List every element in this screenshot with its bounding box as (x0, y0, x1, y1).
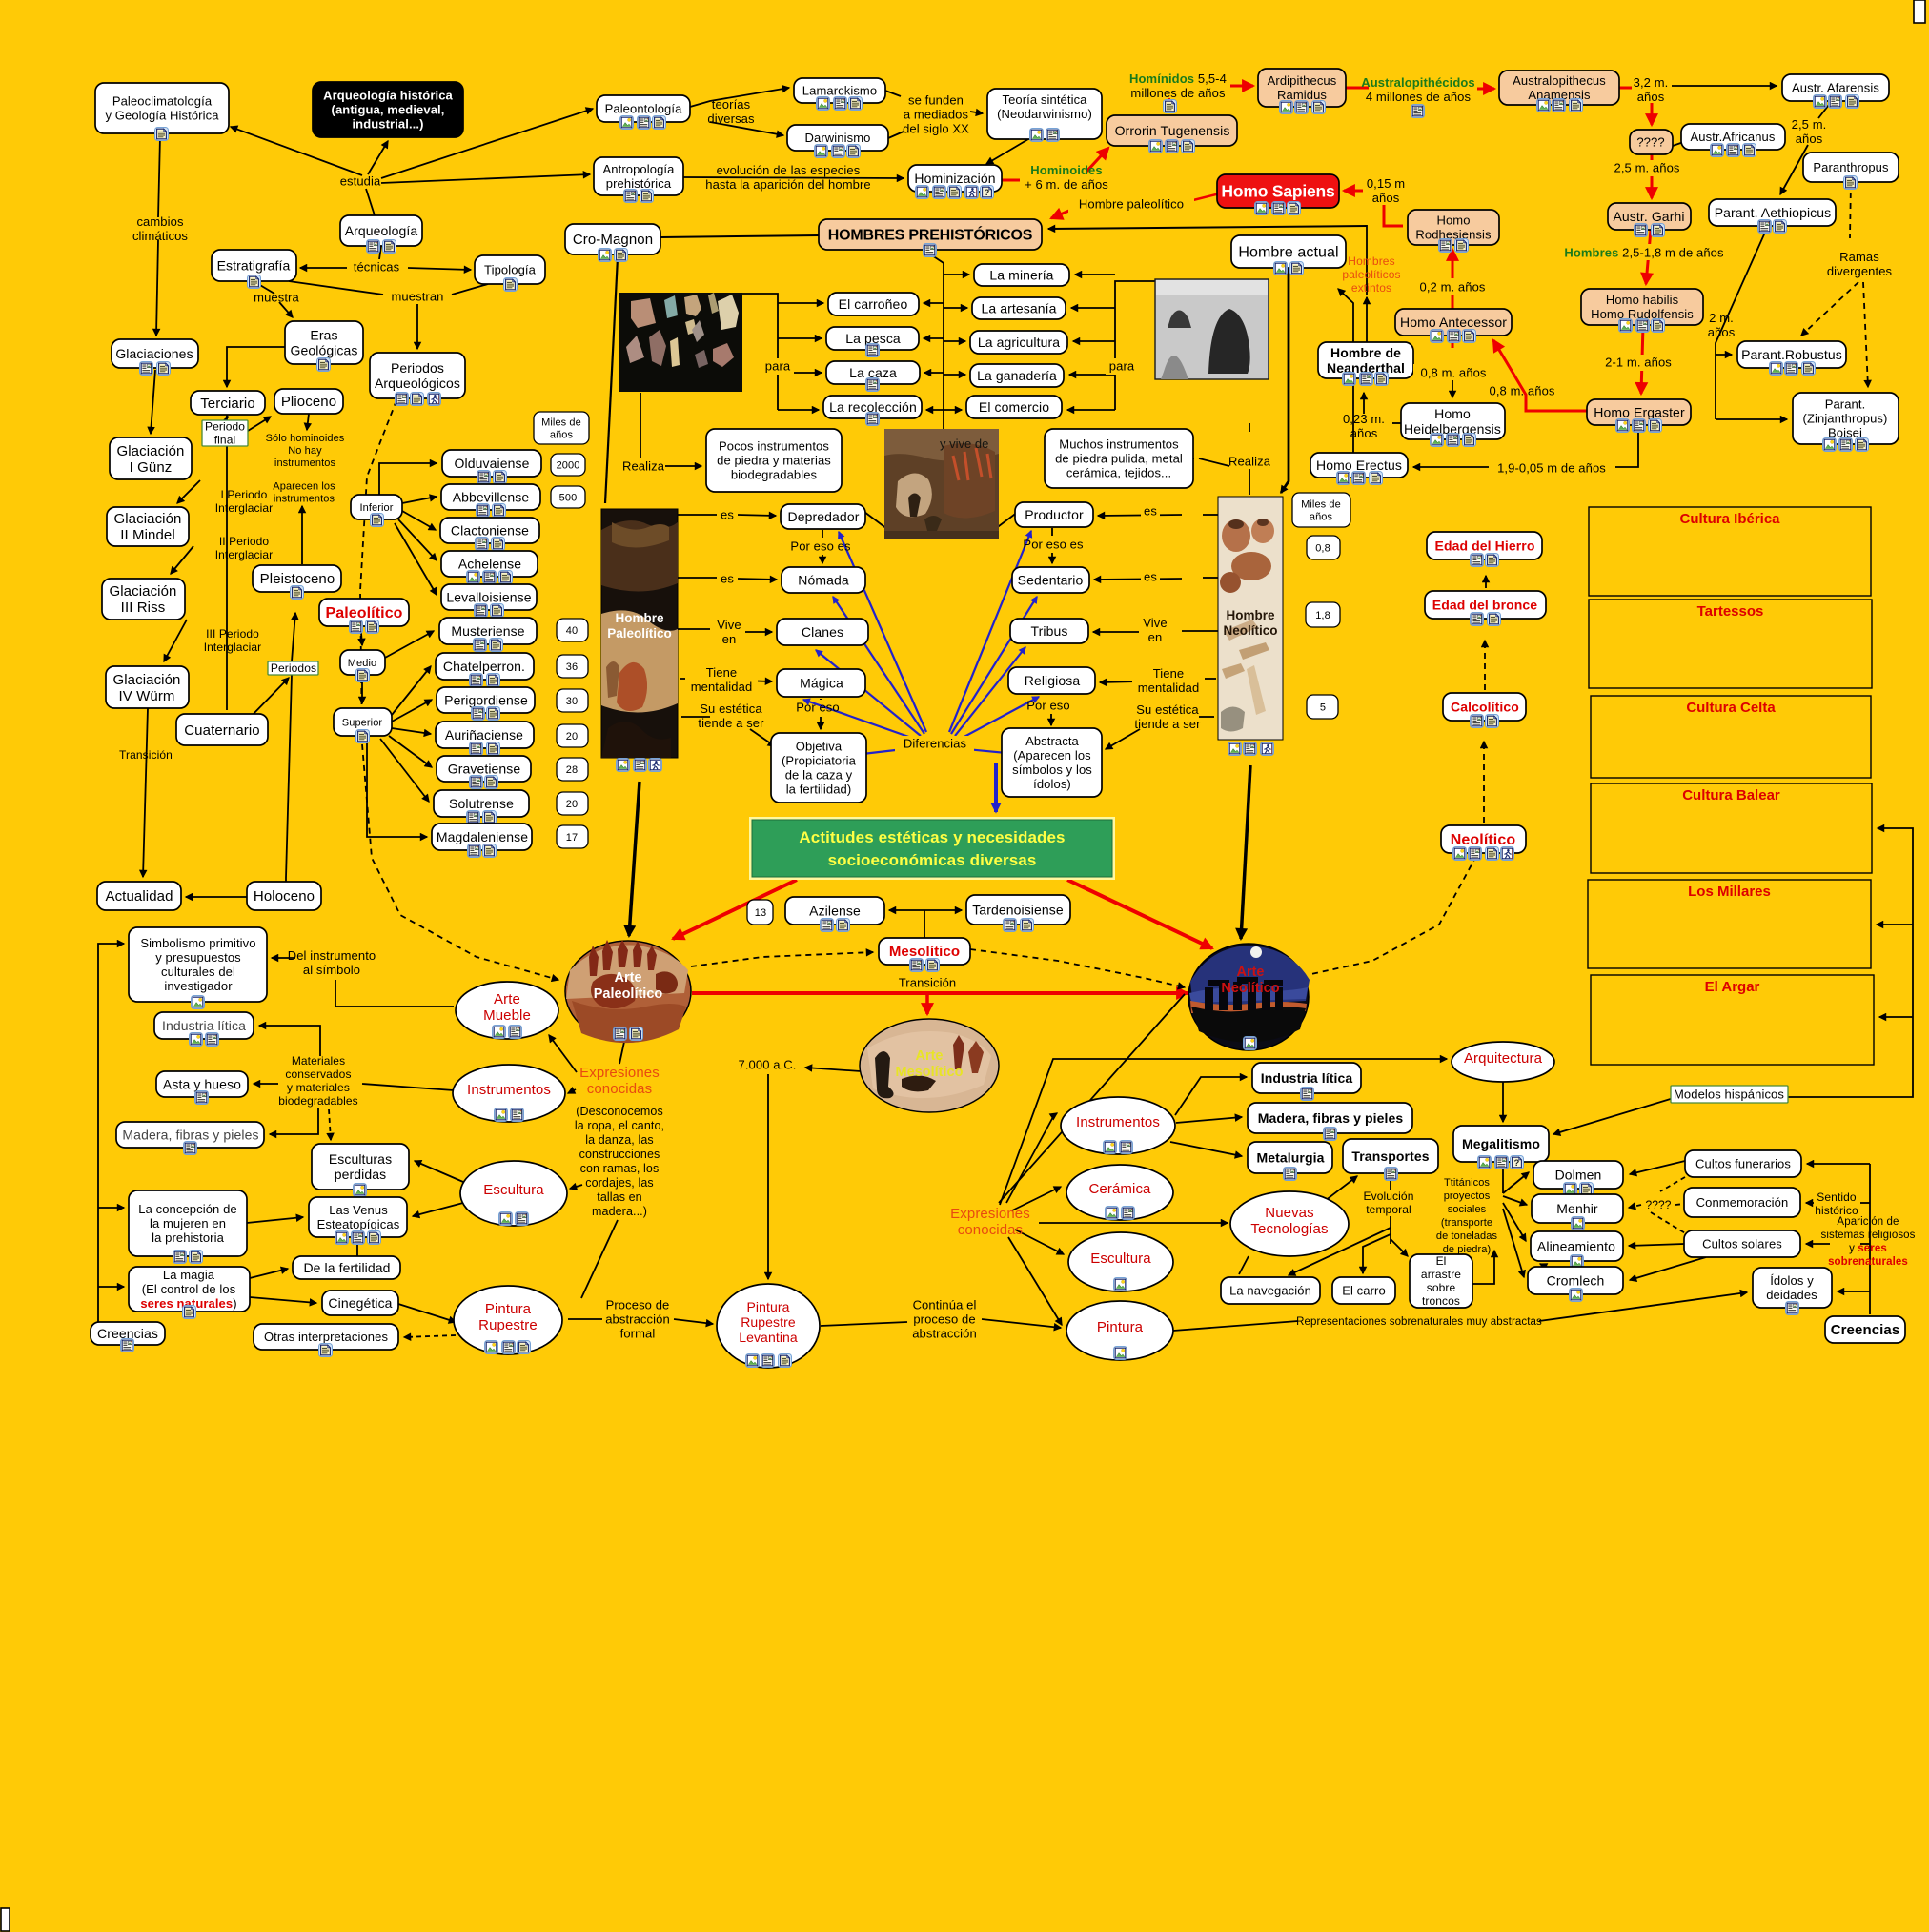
svg-text:Geológicas: Geológicas (290, 342, 357, 357)
svg-text:Abbevillense: Abbevillense (453, 489, 530, 504)
svg-text:Tecnologías: Tecnologías (1250, 1221, 1328, 1237)
svg-text:Achelense: Achelense (458, 556, 521, 571)
svg-text:Periodos: Periodos (391, 360, 444, 376)
svg-text:Periodos: Periodos (271, 661, 316, 675)
svg-text:El carroñeo: El carroñeo (839, 296, 908, 312)
svg-text:500: 500 (559, 492, 578, 503)
svg-text:Pleistoceno: Pleistoceno (260, 571, 335, 587)
svg-text:la prehistoria: la prehistoria (152, 1230, 224, 1245)
svg-text:Terciario: Terciario (200, 396, 255, 412)
svg-text:Lamarckismo: Lamarckismo (802, 84, 877, 98)
svg-text:Conmemoración: Conmemoración (1696, 1195, 1789, 1210)
svg-text:IV Würm: IV Würm (118, 688, 174, 704)
svg-text:cerámica, tejidos...: cerámica, tejidos... (1066, 466, 1171, 480)
svg-text:De la fertilidad: De la fertilidad (303, 1260, 390, 1275)
svg-text:la ropa, el canto,: la ropa, el canto, (575, 1119, 664, 1132)
svg-text:Realiza: Realiza (1228, 455, 1271, 469)
svg-text:Esculturas: Esculturas (329, 1151, 392, 1167)
svg-text:Rupestre: Rupestre (478, 1317, 538, 1333)
svg-text:es: es (1144, 570, 1157, 584)
svg-text:es: es (721, 572, 734, 586)
svg-text:Mueble: Mueble (483, 1007, 531, 1024)
svg-text:de la caza y: de la caza y (785, 768, 853, 783)
svg-text:del siglo XX: del siglo XX (903, 122, 969, 136)
svg-text:Aparecen los: Aparecen los (273, 480, 335, 492)
svg-text:Otras interpretaciones: Otras interpretaciones (264, 1330, 388, 1344)
svg-text:Cinegética: Cinegética (328, 1295, 392, 1311)
svg-text:climáticos: climáticos (132, 229, 188, 243)
svg-text:Teoría sintética: Teoría sintética (1002, 92, 1087, 107)
svg-text:30: 30 (566, 696, 578, 707)
svg-text:Calcolítico: Calcolítico (1451, 699, 1519, 714)
svg-text:Interglaciar: Interglaciar (204, 641, 262, 654)
svg-text:mentalidad: mentalidad (691, 680, 753, 694)
svg-text:Darwinismo: Darwinismo (805, 131, 871, 145)
svg-text:Interglaciar: Interglaciar (215, 501, 274, 515)
svg-text:La magia: La magia (163, 1268, 215, 1282)
svg-text:Pocos instrumentos: Pocos instrumentos (719, 439, 829, 454)
svg-text:teorías: teorías (712, 97, 751, 112)
svg-text:????: ???? (1645, 1198, 1671, 1211)
svg-text:Perigordiense: Perigordiense (444, 692, 528, 707)
svg-text:paleolíticos: paleolíticos (1342, 268, 1400, 281)
svg-text:de piedra pulida, metal: de piedra pulida, metal (1055, 452, 1183, 466)
svg-text:HOMBRES PREHISTÓRICOS: HOMBRES PREHISTÓRICOS (828, 226, 1033, 244)
svg-text:y presupuestos: y presupuestos (155, 950, 241, 965)
svg-text:(Neodarwinismo): (Neodarwinismo) (997, 107, 1092, 121)
svg-text:El: El (1436, 1254, 1447, 1268)
svg-text:Madera, fibras y pieles: Madera, fibras y pieles (122, 1127, 258, 1142)
svg-text:años: años (1310, 511, 1333, 522)
svg-text:ídolos): ídolos) (1033, 777, 1071, 791)
svg-text:Hombre actual: Hombre actual (1238, 245, 1338, 261)
svg-text:Metalurgia: Metalurgia (1256, 1149, 1324, 1165)
svg-text:Austr. Garhi: Austr. Garhi (1613, 209, 1684, 224)
svg-text:7.000 a.C.: 7.000 a.C. (739, 1058, 797, 1072)
svg-text:Eras: Eras (310, 327, 337, 342)
svg-text:Modelos hispánicos: Modelos hispánicos (1674, 1088, 1784, 1102)
svg-text:Glaciaciones: Glaciaciones (115, 346, 193, 361)
svg-text:Tiene: Tiene (1153, 666, 1185, 681)
svg-text:Orrorin Tugenensis: Orrorin Tugenensis (1115, 123, 1230, 138)
svg-text:I Günz: I Günz (130, 459, 173, 476)
svg-text:mentalidad: mentalidad (1138, 681, 1200, 695)
svg-text:muestra: muestra (254, 291, 299, 305)
svg-text:III Periodo: III Periodo (206, 627, 259, 641)
svg-text:extintos: extintos (1351, 281, 1391, 295)
svg-text:abstracción: abstracción (912, 1327, 977, 1341)
svg-text:evolución de las especies: evolución de las especies (717, 163, 861, 177)
svg-text:Edad del Hierro: Edad del Hierro (1435, 538, 1535, 553)
svg-text:????: ???? (1636, 135, 1664, 150)
svg-text:Homo Erectus: Homo Erectus (1316, 458, 1402, 473)
svg-text:(Desconocemos: (Desconocemos (576, 1105, 663, 1118)
svg-text:Arqueología: Arqueología (345, 223, 418, 238)
svg-text:Arqueología histórica: Arqueología histórica (323, 89, 453, 103)
svg-text:conocidas: conocidas (587, 1081, 652, 1097)
svg-text:Paranthropus: Paranthropus (1813, 160, 1889, 174)
svg-text:años: años (1637, 90, 1665, 104)
svg-text:Homo Ergaster: Homo Ergaster (1594, 404, 1685, 419)
svg-text:(antigua, medieval,: (antigua, medieval, (332, 103, 445, 117)
svg-text:Cultos funerarios: Cultos funerarios (1695, 1157, 1791, 1171)
svg-text:Mesolítico: Mesolítico (896, 1065, 964, 1080)
svg-text:Por eso es: Por eso es (1023, 538, 1084, 552)
svg-text:El comercio: El comercio (979, 399, 1049, 415)
svg-text:conservados: conservados (285, 1068, 351, 1081)
svg-text:17: 17 (566, 832, 578, 844)
svg-text:Nuevas: Nuevas (1265, 1205, 1313, 1221)
svg-text:Parant. Aethiopicus: Parant. Aethiopicus (1715, 205, 1832, 220)
svg-text:Escultura: Escultura (1090, 1251, 1151, 1267)
svg-text:hasta la aparición del hombre: hasta la aparición del hombre (705, 177, 870, 192)
svg-text:Antropología: Antropología (603, 162, 676, 176)
svg-text:años: años (1708, 325, 1736, 339)
svg-text:Superior: Superior (342, 717, 383, 728)
svg-text:Tipología: Tipología (484, 263, 537, 277)
svg-text:Asta y hueso: Asta y hueso (163, 1076, 241, 1091)
svg-text:instrumentos: instrumentos (274, 493, 335, 504)
svg-text:divergentes: divergentes (1827, 264, 1893, 278)
svg-text:Miles de: Miles de (541, 417, 581, 428)
svg-text:de toneladas: de toneladas (1436, 1230, 1498, 1242)
svg-text:cordajes, las: cordajes, las (585, 1176, 653, 1190)
svg-text:Objetiva: Objetiva (796, 740, 843, 754)
svg-text:sistemas religiosos: sistemas religiosos (1820, 1230, 1915, 1241)
svg-text:Periodo: Periodo (205, 420, 245, 434)
svg-text:construcciones: construcciones (579, 1148, 660, 1161)
svg-text:Glaciación: Glaciación (112, 672, 180, 688)
svg-text:Tiene: Tiene (706, 665, 738, 680)
svg-text:Cerámica: Cerámica (1089, 1181, 1152, 1197)
svg-text:Realiza: Realiza (622, 459, 665, 474)
svg-text:Sólo hominoides: Sólo hominoides (266, 433, 345, 444)
svg-text:culturales del: culturales del (161, 965, 235, 979)
svg-text:Estratigrafía: Estratigrafía (217, 257, 291, 273)
svg-text:Nómada: Nómada (798, 572, 849, 587)
svg-text:Evolución: Evolución (1364, 1190, 1414, 1203)
svg-text:Neolítico: Neolítico (1451, 832, 1516, 848)
svg-text:la danza, las: la danza, las (585, 1133, 653, 1147)
svg-text:1,9-0,05 m de años: 1,9-0,05 m de años (1497, 461, 1606, 476)
svg-text:La minería: La minería (989, 267, 1053, 282)
svg-text:símbolos y los: símbolos y los (1012, 763, 1092, 777)
svg-text:Pintura: Pintura (485, 1301, 532, 1317)
svg-text:El carro: El carro (1342, 1284, 1386, 1298)
svg-text:Arqueológicos: Arqueológicos (375, 376, 460, 391)
svg-text:Hominización: Hominización (914, 171, 995, 186)
svg-text:diversas: diversas (707, 112, 755, 126)
svg-text:muestran: muestran (392, 290, 444, 304)
svg-text:Por eso es: Por eso es (790, 539, 851, 554)
svg-text:millones de años: millones de años (1130, 86, 1226, 100)
svg-text:Menhir: Menhir (1556, 1201, 1598, 1216)
svg-text:Industria lítica: Industria lítica (162, 1018, 246, 1033)
svg-text:0,8: 0,8 (1315, 542, 1330, 554)
svg-text:y seres: y seres (1849, 1243, 1887, 1254)
svg-text:de piedra): de piedra) (1443, 1244, 1492, 1255)
svg-text:años: años (1372, 191, 1400, 205)
svg-text:Homo Sapiens: Homo Sapiens (1221, 182, 1335, 201)
svg-text:II Periodo: II Periodo (219, 535, 270, 548)
svg-text:para: para (765, 359, 791, 374)
svg-text:años: años (1350, 426, 1378, 440)
svg-text:Auriñaciense: Auriñaciense (445, 727, 523, 742)
svg-text:conocidas: conocidas (958, 1222, 1023, 1238)
svg-text:Continúa el: Continúa el (913, 1298, 977, 1312)
svg-text:prehistórica: prehistórica (606, 176, 672, 191)
svg-text:Materiales: Materiales (292, 1054, 345, 1068)
svg-text:y materiales: y materiales (287, 1081, 350, 1094)
svg-text:Hombre paleolítico: Hombre paleolítico (1079, 197, 1184, 212)
svg-text:III Riss: III Riss (121, 600, 166, 616)
svg-text:investigador: investigador (164, 979, 233, 993)
svg-text:Representaciones sobrenaturale: Representaciones sobrenaturales muy abst… (1296, 1316, 1542, 1328)
svg-text:Cultura Balear: Cultura Balear (1682, 787, 1780, 803)
svg-text:+ 6 m. de años: + 6 m. de años (1025, 177, 1108, 192)
svg-text:Madera, fibras y pieles: Madera, fibras y pieles (1258, 1110, 1404, 1126)
svg-text:Transición: Transición (899, 976, 956, 990)
svg-text:socioeconómicas diversas: socioeconómicas diversas (828, 851, 1037, 869)
svg-text:(Zinjanthropus): (Zinjanthropus) (1803, 412, 1888, 426)
svg-text:Diferencias: Diferencias (904, 737, 967, 751)
svg-text:20: 20 (566, 799, 578, 810)
svg-text:I Periodo: I Periodo (221, 488, 268, 501)
svg-text:Esteatopígicas: Esteatopígicas (317, 1217, 400, 1231)
svg-text:40: 40 (566, 625, 578, 637)
svg-text:3,2 m.: 3,2 m. (1634, 75, 1669, 90)
svg-text:Levantina: Levantina (739, 1330, 798, 1345)
svg-text:No hay: No hay (288, 445, 322, 457)
svg-text:Su estética: Su estética (700, 702, 762, 716)
svg-text:2 m.: 2 m. (1709, 311, 1734, 325)
svg-text:la mujeren en: la mujeren en (150, 1216, 226, 1230)
svg-text:Hombre de: Hombre de (1330, 345, 1401, 360)
svg-text:Homo habilis: Homo habilis (1606, 293, 1679, 307)
svg-text:Cromlech: Cromlech (1547, 1272, 1605, 1288)
svg-text:36: 36 (566, 661, 578, 673)
svg-text:Miles de: Miles de (1301, 498, 1341, 510)
svg-text:deidades: deidades (1766, 1288, 1817, 1302)
svg-text:Magdaleniense: Magdaleniense (437, 829, 528, 844)
svg-text:Por eso: Por eso (796, 701, 840, 715)
svg-text:y vive de: y vive de (940, 437, 988, 451)
svg-text:II Mindel: II Mindel (120, 527, 175, 543)
svg-text:Medio: Medio (348, 658, 376, 669)
svg-text:temporal: temporal (1366, 1203, 1411, 1216)
svg-text:0,15 m: 0,15 m (1367, 176, 1405, 191)
svg-text:La concepción de: La concepción de (138, 1202, 237, 1216)
svg-text:biodegradables: biodegradables (731, 468, 818, 482)
svg-text:Ardipithecus: Ardipithecus (1268, 73, 1337, 88)
svg-text:Tartessos: Tartessos (1697, 603, 1764, 620)
svg-text:Chatelperron.: Chatelperron. (443, 659, 525, 674)
svg-text:Inferior: Inferior (359, 502, 393, 514)
svg-text:(Aparecen los: (Aparecen los (1013, 748, 1091, 763)
svg-text:proyectos: proyectos (1444, 1190, 1491, 1202)
svg-text:Homo Antecessor: Homo Antecessor (1400, 315, 1507, 330)
svg-text:Levalloisiense: Levalloisiense (446, 589, 531, 604)
svg-text:Cuaternario: Cuaternario (184, 722, 259, 739)
svg-text:Glaciación: Glaciación (109, 583, 176, 600)
svg-text:Glaciación: Glaciación (113, 511, 181, 527)
svg-text:Rupestre: Rupestre (741, 1314, 796, 1330)
svg-text:en: en (722, 632, 737, 646)
svg-text:Arquitectura: Arquitectura (1464, 1050, 1543, 1067)
svg-text:Escultura: Escultura (483, 1182, 544, 1198)
svg-text:Arte: Arte (614, 970, 641, 986)
svg-text:perdidas: perdidas (335, 1167, 387, 1182)
svg-text:(El control de los: (El control de los (142, 1282, 236, 1296)
svg-text:13: 13 (755, 907, 766, 919)
svg-text:20: 20 (566, 731, 578, 742)
svg-text:Rodhesiensis: Rodhesiensis (1415, 228, 1492, 242)
svg-text:Austr. Afarensis: Austr. Afarensis (1792, 81, 1879, 95)
svg-text:Actitudes estéticas y necesida: Actitudes estéticas y necesidades (799, 828, 1065, 846)
svg-text:Hombres 2,5-1,8 m de años: Hombres 2,5-1,8 m de años (1564, 246, 1724, 260)
svg-text:Instrumentos: Instrumentos (467, 1082, 551, 1098)
svg-text:Expresiones: Expresiones (950, 1206, 1030, 1222)
svg-text:Dolmen: Dolmen (1555, 1167, 1602, 1182)
svg-text:troncos: troncos (1422, 1294, 1460, 1308)
svg-text:sobre: sobre (1427, 1281, 1456, 1294)
svg-text:Paleolítico: Paleolítico (607, 626, 672, 641)
svg-text:Australopithécidos: Australopithécidos (1361, 75, 1475, 90)
svg-text:Pintura: Pintura (746, 1299, 789, 1314)
svg-text:2,5 m. años: 2,5 m. años (1614, 161, 1679, 175)
svg-text:sobrenaturales: sobrenaturales (1828, 1256, 1908, 1268)
svg-text:4 millones de años: 4 millones de años (1366, 90, 1472, 104)
svg-text:Austr.Africanus: Austr.Africanus (1691, 130, 1776, 144)
svg-text:se funden: se funden (908, 93, 964, 108)
svg-text:con ramas, los: con ramas, los (580, 1162, 660, 1175)
svg-text:Depredador: Depredador (788, 509, 860, 524)
svg-text:años: años (550, 429, 574, 440)
svg-text:Paleontología: Paleontología (605, 102, 682, 116)
svg-text:Plioceno: Plioceno (281, 394, 336, 410)
svg-text:madera...): madera...) (592, 1205, 647, 1218)
svg-text:(Propiciatoria: (Propiciatoria (782, 754, 857, 768)
svg-text:Arte: Arte (1236, 965, 1264, 980)
svg-text:a mediados: a mediados (904, 108, 969, 122)
svg-text:(transporte: (transporte (1441, 1217, 1492, 1229)
svg-text:0,2 m. años: 0,2 m. años (1419, 280, 1485, 295)
svg-text:Cultura Ibérica: Cultura Ibérica (1679, 511, 1780, 527)
svg-text:sociales: sociales (1448, 1204, 1487, 1215)
svg-text:2000: 2000 (557, 459, 580, 471)
svg-text:2,5 m.: 2,5 m. (1792, 117, 1827, 132)
svg-text:Abstracta: Abstracta (1025, 734, 1079, 748)
svg-text:Edad del bronce: Edad del bronce (1432, 597, 1538, 612)
svg-text:1,8: 1,8 (1315, 610, 1330, 621)
svg-text:0,8 m. años: 0,8 m. años (1420, 366, 1486, 380)
svg-text:Cro-Magnon: Cro-Magnon (573, 232, 653, 248)
svg-text:El Argar: El Argar (1705, 979, 1760, 995)
svg-text:Cultos solares: Cultos solares (1702, 1237, 1782, 1251)
svg-text:Expresiones: Expresiones (579, 1065, 660, 1081)
svg-text:Paleolítico: Paleolítico (325, 605, 402, 621)
svg-text:Transportes: Transportes (1351, 1149, 1429, 1164)
svg-text:Paleoclimatología: Paleoclimatología (112, 94, 213, 109)
svg-text:Los Millares: Los Millares (1688, 884, 1771, 900)
svg-text:Instrumentos: Instrumentos (1076, 1114, 1160, 1130)
svg-text:Holoceno: Holoceno (254, 888, 315, 905)
svg-text:Homo: Homo (1434, 406, 1471, 421)
svg-text:Hombres: Hombres (1348, 254, 1394, 268)
svg-text:Transición: Transición (119, 748, 173, 762)
svg-text:Tribus: Tribus (1031, 623, 1068, 639)
svg-text:0,8 m. años: 0,8 m. años (1489, 384, 1554, 398)
svg-text:años: años (1796, 132, 1823, 146)
svg-text:es: es (1144, 504, 1157, 519)
svg-text:Industria lítica: Industria lítica (1261, 1070, 1353, 1086)
svg-text:técnicas: técnicas (354, 260, 400, 275)
svg-text:Parant.: Parant. (1825, 397, 1866, 412)
svg-text:abstracción: abstracción (605, 1312, 670, 1327)
svg-text:Creencias: Creencias (1831, 1322, 1900, 1338)
svg-text:La navegación: La navegación (1229, 1284, 1311, 1298)
svg-text:estudia: estudia (340, 174, 381, 189)
svg-text:Homínidos 5,5-4: Homínidos 5,5-4 (1129, 71, 1227, 86)
svg-text:Interglaciar: Interglaciar (215, 548, 274, 561)
svg-text:5: 5 (1320, 702, 1326, 713)
svg-text:final: final (214, 434, 236, 447)
svg-text:Productor: Productor (1025, 507, 1084, 522)
svg-text:Ramas: Ramas (1839, 250, 1879, 264)
svg-text:Aparición de: Aparición de (1837, 1216, 1899, 1228)
svg-text:Actualidad: Actualidad (105, 888, 173, 905)
svg-text:biodegradables: biodegradables (278, 1094, 357, 1108)
svg-text:Paleolítico: Paleolítico (594, 986, 663, 1002)
svg-text:Australopithecus: Australopithecus (1513, 73, 1606, 88)
svg-text:Sedentario: Sedentario (1018, 572, 1084, 587)
svg-text:Solutrense: Solutrense (449, 796, 514, 811)
svg-text:tiende a ser: tiende a ser (698, 716, 764, 730)
svg-text:Proceso de: Proceso de (606, 1298, 670, 1312)
svg-text:proceso de: proceso de (913, 1312, 975, 1327)
svg-text:Hombre: Hombre (1226, 608, 1274, 622)
svg-text:Vive: Vive (717, 618, 741, 632)
svg-text:instrumentos: instrumentos (274, 458, 336, 469)
svg-text:Arte: Arte (915, 1048, 943, 1064)
svg-text:Religiosa: Religiosa (1025, 673, 1081, 688)
svg-text:formal: formal (620, 1327, 656, 1341)
svg-text:Ramidus: Ramidus (1277, 88, 1327, 102)
svg-text:Neolítico: Neolítico (1223, 623, 1277, 638)
svg-text:Por eso: Por eso (1026, 699, 1070, 713)
svg-text:0,23 m.: 0,23 m. (1343, 412, 1385, 426)
svg-text:Musteriense: Musteriense (451, 623, 524, 639)
svg-text:Homo: Homo (1436, 214, 1470, 228)
svg-text:la fertilidad): la fertilidad) (786, 783, 852, 797)
svg-text:es: es (721, 508, 734, 522)
svg-text:en: en (1148, 630, 1163, 644)
svg-text:Cultura Celta: Cultura Celta (1686, 700, 1776, 716)
svg-text:Alineamiento: Alineamiento (1537, 1238, 1615, 1253)
svg-text:tiende a ser: tiende a ser (1134, 717, 1201, 731)
svg-text:Hombre: Hombre (615, 611, 663, 625)
svg-text:industrial...): industrial...) (352, 117, 423, 132)
svg-text:Las Venus: Las Venus (329, 1203, 388, 1217)
svg-text:La artesanía: La artesanía (981, 300, 1056, 315)
svg-text:La ganadería: La ganadería (977, 368, 1057, 383)
svg-text:La agricultura: La agricultura (978, 335, 1060, 350)
svg-text:Olduvaiense: Olduvaiense (455, 456, 530, 471)
svg-text:Gravetiense: Gravetiense (448, 761, 521, 776)
svg-text:Mágica: Mágica (800, 675, 843, 690)
svg-text:tallas en: tallas en (597, 1190, 641, 1204)
svg-text:Hominoides: Hominoides (1030, 163, 1102, 177)
